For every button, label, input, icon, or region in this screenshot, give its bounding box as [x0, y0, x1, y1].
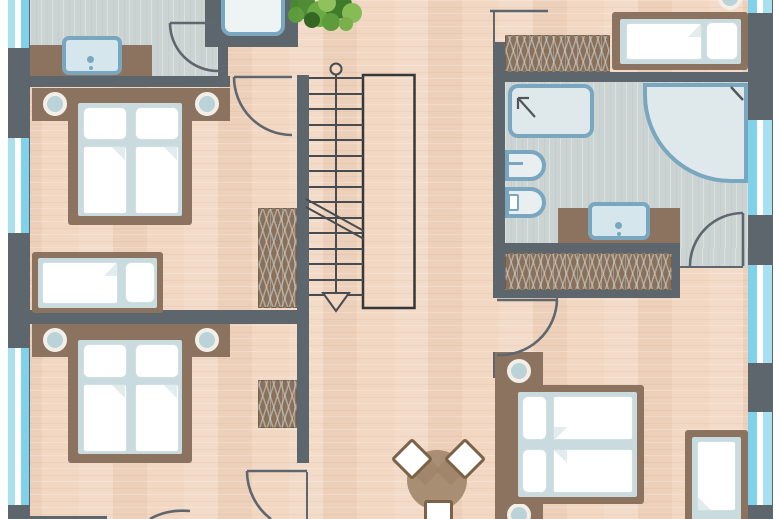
shower: [508, 84, 594, 138]
wall-center-south: [297, 324, 309, 463]
window-left-2-outer: [8, 138, 15, 233]
wardrobe-top-left-bedroom: [258, 208, 297, 308]
window-left-3-inner: [21, 348, 29, 505]
pillow: [135, 107, 179, 140]
bedside-lamp: [195, 328, 219, 352]
bathtub-niche: [221, 0, 285, 36]
duvet-fold: [554, 427, 567, 440]
sink-drain-dot: [617, 232, 621, 236]
duvet-fold: [112, 147, 125, 160]
duvet-fold: [698, 497, 711, 510]
wall-right-rooms-west: [493, 42, 505, 298]
window-left-1-outer: [8, 0, 15, 48]
window-right-3-inner: [748, 265, 757, 363]
floor-plan: [0, 0, 779, 519]
sink-drain-dot: [89, 66, 93, 70]
duvet-fold: [164, 385, 177, 398]
toilet-flush-line: [505, 162, 523, 165]
wall-stairs-west: [297, 75, 309, 324]
wall-bathroom-right-north: [505, 72, 770, 82]
duvet-fold: [554, 450, 567, 463]
pillow: [706, 22, 738, 60]
duvet-fold: [112, 385, 125, 398]
sink-faucet-dot: [87, 56, 94, 63]
window-left-1-inner: [21, 0, 29, 48]
pillow: [125, 262, 155, 303]
sink-faucet-dot: [615, 222, 622, 229]
wardrobe-below-bathroom: [505, 253, 672, 290]
pillow: [522, 396, 547, 440]
bidet-inner-detail: [508, 194, 519, 211]
pillow: [83, 107, 127, 140]
bedside-lamp: [43, 328, 67, 352]
bedside-lamp: [195, 92, 219, 116]
bathroom-right-doorway-floor: [680, 248, 748, 267]
bedside-lamp: [43, 92, 67, 116]
window-right-4-inner: [748, 412, 757, 505]
duvet-fold: [688, 24, 701, 37]
window-left-2-inner: [21, 138, 29, 233]
duvet-fold: [164, 147, 177, 160]
pillow: [135, 344, 179, 378]
wall-closet-east: [672, 253, 680, 298]
chair-bottom: [424, 500, 453, 519]
wall-closet-south: [493, 290, 680, 298]
bedside-lamp: [507, 359, 531, 383]
window-right-1-outer: [763, 0, 772, 13]
window-right-2-outer: [763, 120, 772, 215]
toilet: [505, 150, 546, 181]
window-right-4-outer: [763, 412, 772, 505]
window-right-2-inner: [748, 120, 757, 215]
wall-bath-bed-divider-left: [8, 76, 230, 87]
duvet-fold: [104, 263, 117, 276]
wardrobe-bottom-left-bedroom: [258, 380, 297, 428]
wall-niche-jamb: [218, 47, 228, 76]
wardrobe-top-right-room: [505, 35, 610, 72]
wall-bathroom-right-south: [493, 243, 680, 253]
window-right-1-inner: [748, 0, 757, 13]
window-left-3-outer: [8, 348, 15, 505]
window-right-3-outer: [763, 265, 772, 363]
pillow: [83, 344, 127, 378]
pillow: [522, 449, 547, 493]
